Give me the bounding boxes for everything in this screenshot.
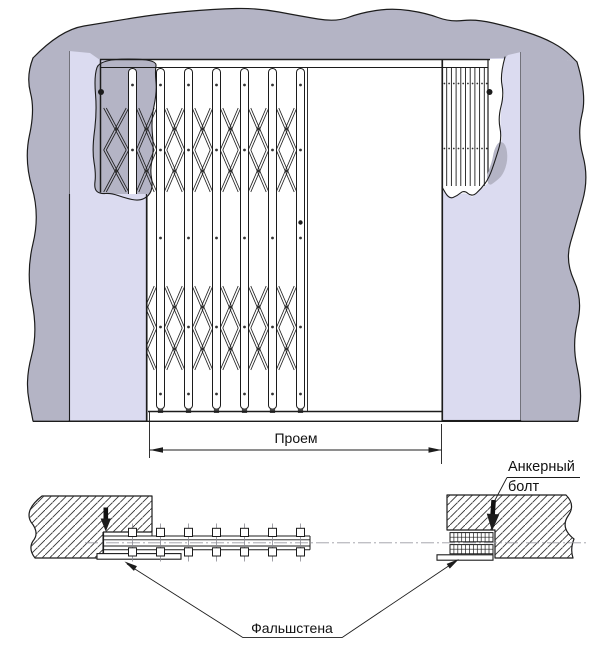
plan-view — [29, 495, 588, 562]
drawing-canvas: Проем Анкерный болт Фальшстена — [0, 0, 601, 647]
opening-dimension-label: Проем — [256, 429, 336, 448]
technical-drawing — [0, 0, 601, 647]
false-wall-label: Фальшстена — [240, 619, 344, 638]
anchor-bolt-label: Анкерный болт — [508, 457, 596, 497]
